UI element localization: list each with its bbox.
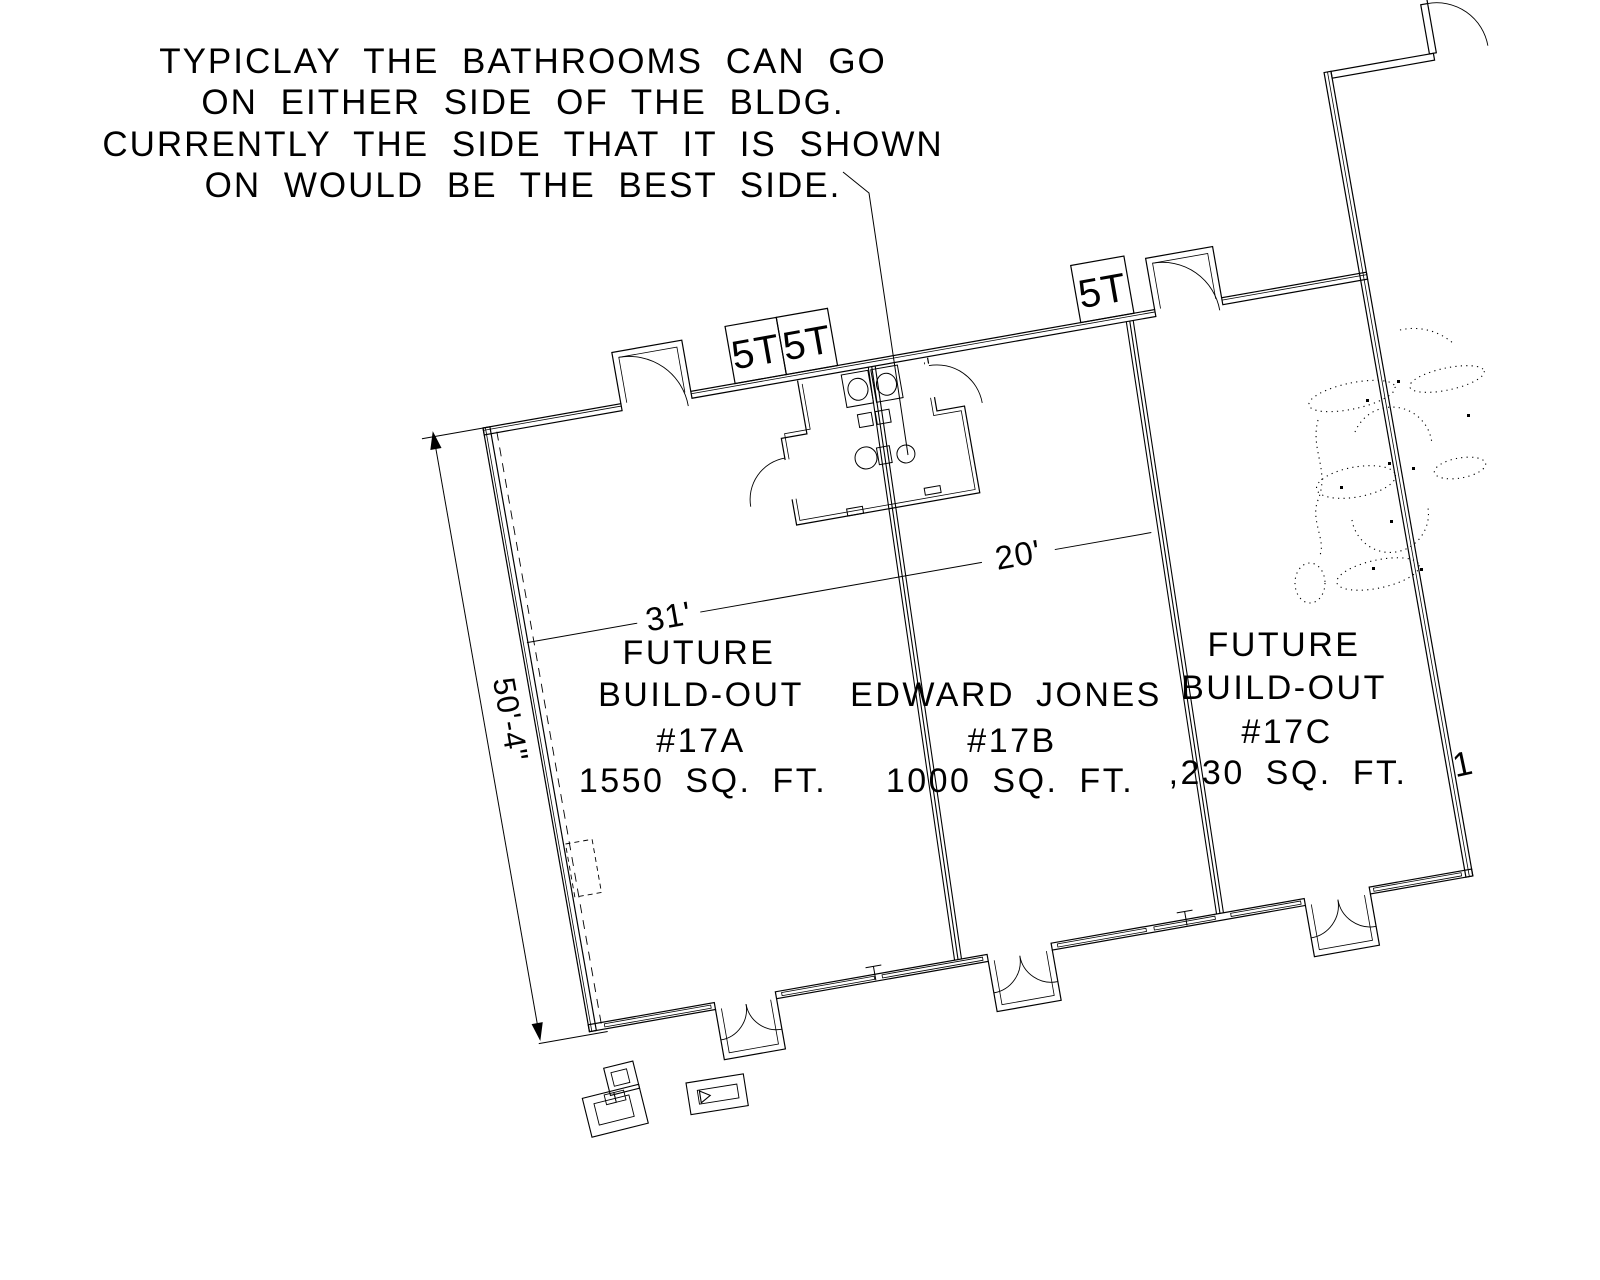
annotation-line-2: ON EITHER SIDE OF THE BLDG. [201, 83, 844, 122]
entry-recess-unit-c [1305, 894, 1379, 957]
unit-c-number: #17C [1241, 713, 1332, 751]
demising-wall-b-c [1113, 320, 1238, 914]
unit-b-area: 1000 SQ. FT. [886, 762, 1134, 800]
window-tag-boxes: 5T 5T 5T [725, 256, 1134, 383]
door-swing-arc [929, 358, 982, 411]
unit-b-number: #17B [967, 722, 1056, 760]
building-shell: 5T 5T 5T [368, 0, 1600, 1094]
dimension-unit-b-width: 20' [992, 532, 1044, 576]
right-wall [1306, 0, 1600, 877]
unit-b-label: EDWARD JONES #17B 1000 SQ. FT. [850, 676, 1162, 800]
annotation-line-4: ON WOULD BE THE BEST SIDE. [205, 166, 842, 205]
door-swing-arc [743, 458, 792, 507]
detail-object-left [577, 1061, 649, 1137]
unit-a-name-1: FUTURE [623, 634, 776, 672]
unit-a-area: 1550 SQ. FT. [579, 762, 827, 800]
entry-recess-unit-a [716, 999, 786, 1060]
dimension-arrow [532, 1023, 545, 1040]
window-tag-5t-2: 5T [779, 318, 835, 370]
door-leaf [1418, 0, 1427, 4]
floor-plan-canvas: 5T 5T 5T [0, 0, 1600, 1280]
storefront-glazing [604, 873, 1461, 1027]
annotation-line-3: CURRENTLY THE SIDE THAT IT IS SHOWN [102, 125, 943, 164]
dimension-unit-a-width: 31' [643, 594, 695, 638]
bathroom-fixtures [824, 361, 943, 516]
toilet-stall [841, 370, 873, 407]
unit-c-area-overflow-digit: 1 [1449, 743, 1478, 785]
floor-plan-drawing: 5T 5T 5T [0, 0, 1600, 1280]
rear-wall [483, 272, 1368, 435]
dotted-planting-pattern [1295, 328, 1487, 603]
dimension-left-wall: 50'-4" [486, 675, 535, 765]
unit-a-label: FUTURE BUILD-OUT #17A 1550 SQ. FT. [579, 634, 827, 800]
unit-a-name-2: BUILD-OUT [598, 676, 804, 714]
entry-recess-unit-b [988, 950, 1061, 1012]
window-tag-5t-1: 5T [728, 327, 784, 379]
annotation-line-1: TYPICLAY THE BATHROOMS CAN GO [159, 42, 887, 81]
sink [896, 444, 917, 465]
unit-c-label: FUTURE BUILD-OUT #17C ,230 SQ. FT. 1 [1169, 626, 1479, 792]
rear-entry-recess-1 [612, 340, 693, 417]
unit-c-name-1: FUTURE [1208, 626, 1361, 664]
left-dimension: 50'-4" [421, 421, 607, 1045]
detail-object-right [686, 1074, 748, 1115]
unit-a-number: #17A [656, 722, 745, 760]
toilet [846, 377, 870, 402]
door-swing-arc [619, 347, 689, 417]
unit-c-name-2: BUILD-OUT [1181, 669, 1387, 707]
window-tag-5t-3: 5T [1075, 265, 1131, 317]
interior-dimension: 31' 20' [523, 513, 1154, 660]
annotation-note: TYPICLAY THE BATHROOMS CAN GO ON EITHER … [102, 42, 943, 455]
door-swing-arc [1428, 0, 1488, 55]
unit-c-area: ,230 SQ. FT. [1169, 754, 1408, 792]
sink [853, 445, 878, 470]
rear-entry-recess-2 [1146, 247, 1224, 322]
unit-b-name: EDWARD JONES [850, 676, 1162, 714]
dimension-arrow [428, 432, 441, 449]
